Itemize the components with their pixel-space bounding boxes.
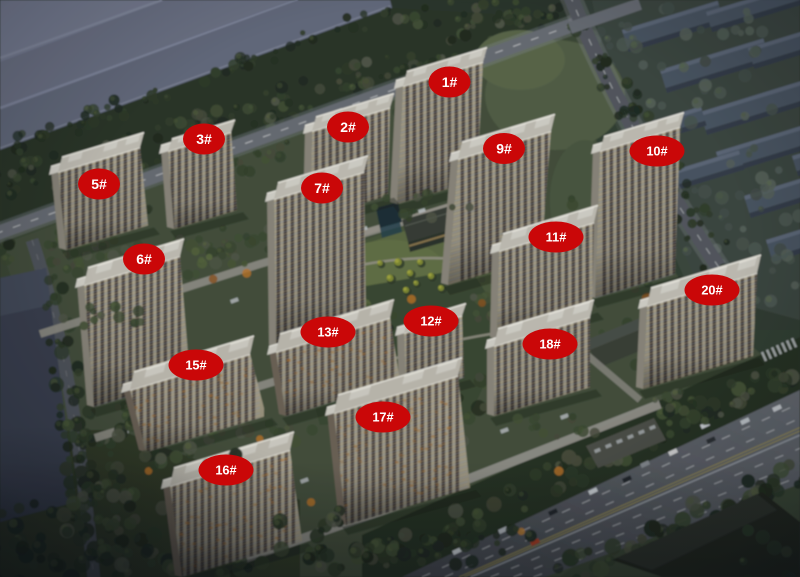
svg-text:11#: 11# xyxy=(546,230,567,245)
svg-text:20#: 20# xyxy=(701,283,722,298)
svg-text:13#: 13# xyxy=(317,325,338,340)
svg-text:1#: 1# xyxy=(442,74,458,90)
svg-text:16#: 16# xyxy=(215,463,236,478)
svg-text:7#: 7# xyxy=(314,180,330,196)
svg-text:18#: 18# xyxy=(539,337,560,352)
svg-text:9#: 9# xyxy=(496,141,512,157)
svg-text:10#: 10# xyxy=(646,144,667,159)
svg-text:12#: 12# xyxy=(420,314,441,329)
svg-text:15#: 15# xyxy=(185,358,206,373)
svg-text:17#: 17# xyxy=(372,410,393,425)
svg-text:2#: 2# xyxy=(340,119,356,135)
svg-text:6#: 6# xyxy=(136,251,152,267)
svg-text:3#: 3# xyxy=(196,131,212,147)
svg-text:5#: 5# xyxy=(91,176,107,192)
